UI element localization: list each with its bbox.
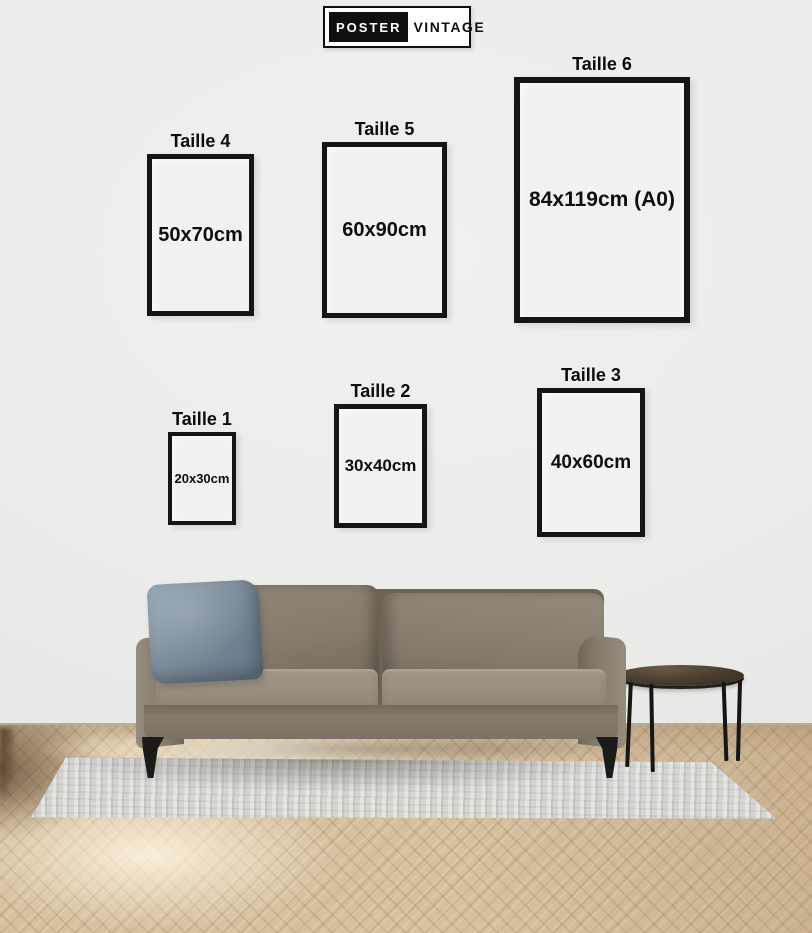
- size-dimension-taille-2: 30x40cm: [345, 456, 417, 476]
- size-item-taille-4: Taille 4 50x70cm: [147, 130, 254, 316]
- poster-frame-taille-6: 84x119cm (A0): [514, 77, 690, 323]
- size-label-taille-3: Taille 3: [561, 364, 621, 388]
- sofa-base: [144, 705, 618, 739]
- size-item-taille-1: Taille 1 20x30cm: [168, 408, 236, 525]
- size-item-taille-3: Taille 3 40x60cm: [537, 364, 645, 537]
- poster-frame-taille-2: 30x40cm: [334, 404, 427, 528]
- poster-frame-taille-1: 20x30cm: [168, 432, 236, 525]
- size-label-taille-1: Taille 1: [172, 408, 232, 432]
- poster-frame-taille-5: 60x90cm: [322, 142, 447, 318]
- throw-pillow: [146, 579, 263, 685]
- size-item-taille-5: Taille 5 60x90cm: [322, 118, 447, 318]
- size-dimension-taille-4: 50x70cm: [158, 224, 243, 247]
- size-label-taille-5: Taille 5: [355, 118, 415, 142]
- brand-logo: POSTER VINTAGE: [323, 6, 471, 48]
- size-dimension-taille-5: 60x90cm: [342, 219, 427, 242]
- poster-frame-taille-4: 50x70cm: [147, 154, 254, 316]
- poster-frame-taille-3: 40x60cm: [537, 388, 645, 537]
- size-dimension-taille-6: 84x119cm (A0): [529, 188, 675, 212]
- size-label-taille-2: Taille 2: [351, 380, 411, 404]
- size-item-taille-2: Taille 2 30x40cm: [334, 380, 427, 528]
- size-item-taille-6: Taille 6 84x119cm (A0): [514, 53, 690, 323]
- floor-corner-shadow: [0, 728, 14, 798]
- poster-size-guide-image: POSTER VINTAGE Taille 4 50x70cm Taille 5…: [0, 0, 812, 933]
- size-dimension-taille-3: 40x60cm: [551, 452, 631, 474]
- size-dimension-taille-1: 20x30cm: [175, 471, 230, 486]
- logo-poster-text: POSTER: [329, 12, 408, 42]
- size-label-taille-6: Taille 6: [572, 53, 632, 77]
- logo-vintage-text: VINTAGE: [408, 12, 490, 42]
- size-label-taille-4: Taille 4: [171, 130, 231, 154]
